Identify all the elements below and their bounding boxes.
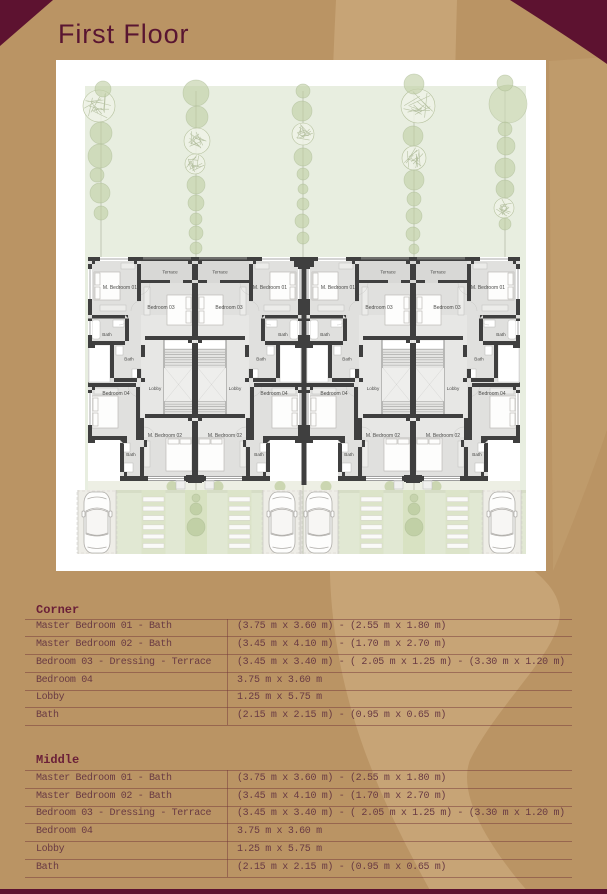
svg-text:Bath: Bath bbox=[126, 452, 136, 457]
svg-text:Lobby: Lobby bbox=[229, 386, 242, 391]
svg-text:M. Bedroom 01: M. Bedroom 01 bbox=[253, 285, 287, 291]
svg-text:Terrace: Terrace bbox=[212, 270, 228, 275]
svg-text:M. Bedroom 02: M. Bedroom 02 bbox=[208, 433, 242, 439]
svg-text:Bedroom 04: Bedroom 04 bbox=[102, 391, 129, 397]
svg-text:Bedroom 03: Bedroom 03 bbox=[215, 305, 242, 311]
svg-text:M. Bedroom 01: M. Bedroom 01 bbox=[321, 285, 355, 291]
svg-text:Terrace: Terrace bbox=[380, 270, 396, 275]
svg-text:Bedroom 03: Bedroom 03 bbox=[433, 305, 460, 311]
svg-text:Bath: Bath bbox=[474, 357, 484, 362]
svg-text:Terrace: Terrace bbox=[162, 270, 178, 275]
svg-text:Bath: Bath bbox=[342, 357, 352, 362]
svg-text:Bedroom 03: Bedroom 03 bbox=[365, 305, 392, 311]
svg-text:M. Bedroom 02: M. Bedroom 02 bbox=[366, 433, 400, 439]
svg-text:Bedroom 04: Bedroom 04 bbox=[320, 391, 347, 397]
svg-text:Terrace: Terrace bbox=[430, 270, 446, 275]
svg-text:M. Bedroom 01: M. Bedroom 01 bbox=[103, 285, 137, 291]
svg-text:M. Bedroom 01: M. Bedroom 01 bbox=[471, 285, 505, 291]
svg-text:Bath: Bath bbox=[254, 452, 264, 457]
svg-text:M. Bedroom 02: M. Bedroom 02 bbox=[148, 433, 182, 439]
svg-text:M. Bedroom 02: M. Bedroom 02 bbox=[426, 433, 460, 439]
svg-text:Bath: Bath bbox=[124, 357, 134, 362]
svg-text:Bath: Bath bbox=[472, 452, 482, 457]
svg-text:Bath: Bath bbox=[320, 332, 330, 337]
svg-text:Bedroom 04: Bedroom 04 bbox=[478, 391, 505, 397]
svg-text:Lobby: Lobby bbox=[149, 386, 162, 391]
svg-text:Bath: Bath bbox=[256, 357, 266, 362]
svg-text:Bath: Bath bbox=[344, 452, 354, 457]
svg-text:Bedroom 03: Bedroom 03 bbox=[147, 305, 174, 311]
svg-text:Bath: Bath bbox=[496, 332, 506, 337]
svg-text:Lobby: Lobby bbox=[367, 386, 380, 391]
svg-text:Bedroom 04: Bedroom 04 bbox=[260, 391, 287, 397]
svg-text:Lobby: Lobby bbox=[447, 386, 460, 391]
svg-text:Bath: Bath bbox=[102, 332, 112, 337]
svg-text:Bath: Bath bbox=[278, 332, 288, 337]
